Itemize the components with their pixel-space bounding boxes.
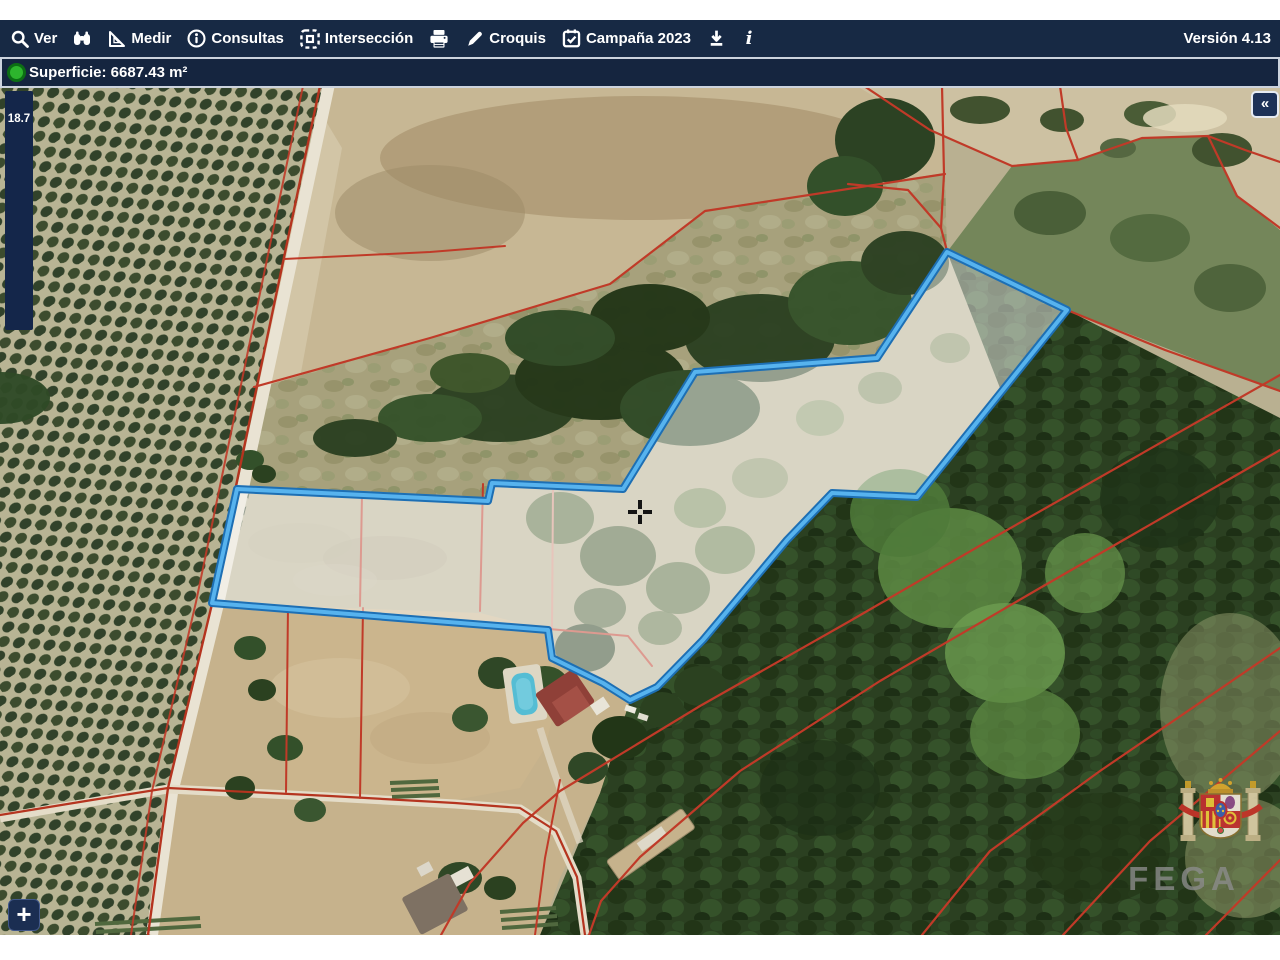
binoculars-icon	[72, 29, 92, 49]
toolbar-item-consultas[interactable]: Consultas	[186, 28, 284, 49]
superficie-readout: Superficie: 6687.43 m²	[29, 64, 187, 81]
ruler-icon	[107, 29, 127, 49]
toolbar-item-croquis[interactable]: Croquis	[465, 29, 546, 49]
collapse-panel-button[interactable]: «	[1251, 91, 1279, 118]
printer-icon	[428, 28, 450, 50]
toolbar-item-binoculars[interactable]	[72, 29, 92, 49]
intersection-icon	[299, 28, 321, 50]
sigpac-viewer-window: Ver Medir Consultas Intersección	[0, 0, 1280, 960]
toolbar-label-interseccion: Intersección	[325, 30, 413, 47]
info-circle-icon	[186, 28, 207, 49]
magnifier-icon	[10, 29, 30, 49]
zoom-in-button[interactable]: +	[8, 899, 40, 931]
statusbar: Superficie: 6687.43 m²	[0, 57, 1280, 88]
toolbar-label-medir: Medir	[131, 30, 171, 47]
toolbar-item-medir[interactable]: Medir	[107, 29, 171, 49]
pencil-icon	[465, 29, 485, 49]
toolbar-item-info[interactable]: i	[742, 28, 756, 49]
download-icon	[706, 28, 727, 49]
status-dot-icon	[7, 63, 26, 82]
info-italic-icon: i	[742, 28, 756, 49]
fega-watermark: FEGA	[1096, 860, 1272, 898]
toolbar-item-campana[interactable]: Campaña 2023	[561, 28, 691, 49]
aerial-imagery	[0, 88, 1280, 935]
toolbar-item-download[interactable]	[706, 28, 727, 49]
toolbar-item-ver[interactable]: Ver	[10, 29, 57, 49]
svg-text:i: i	[746, 28, 753, 49]
toolbar-item-print[interactable]	[428, 28, 450, 50]
toolbar-label-campana: Campaña 2023	[586, 30, 691, 47]
calendar-check-icon	[561, 28, 582, 49]
main-toolbar: Ver Medir Consultas Intersección	[0, 20, 1280, 57]
toolbar-label-croquis: Croquis	[489, 30, 546, 47]
map-viewport[interactable]: 18.7 + « FEGA	[0, 88, 1280, 935]
toolbar-label-ver: Ver	[34, 30, 57, 47]
toolbar-item-interseccion[interactable]: Intersección	[299, 28, 413, 50]
version-label: Versión 4.13	[1183, 30, 1271, 47]
scale-indicator: 18.7	[5, 91, 33, 330]
toolbar-label-consultas: Consultas	[211, 30, 284, 47]
scale-value: 18.7	[8, 113, 30, 125]
